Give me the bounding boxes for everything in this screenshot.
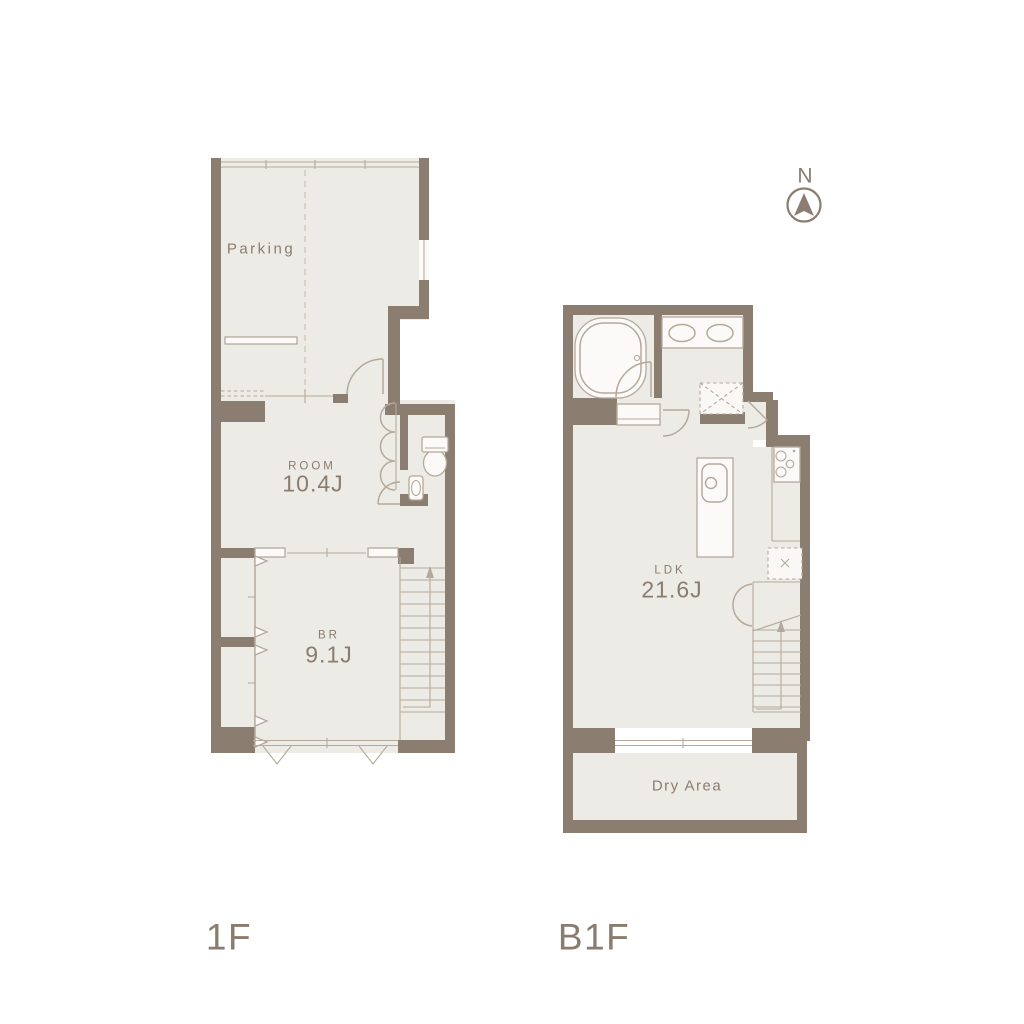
wall-b1f-bath-divider	[654, 313, 662, 398]
compass-north-label: N	[797, 166, 812, 187]
wall-1f-right	[445, 404, 455, 753]
parking-area	[211, 158, 429, 320]
wall-1f-toilet-left	[400, 415, 408, 470]
wall-b1f-wash-right	[743, 305, 753, 402]
ldk-label: LDK	[654, 565, 685, 577]
bedroom-size-label: 9.1J	[305, 644, 352, 667]
toilet-bowl	[424, 450, 447, 476]
wall-1f-bottom-left	[221, 727, 255, 753]
washbasin-counter	[662, 317, 743, 348]
laundry-niche	[617, 404, 660, 425]
toilet-tank	[422, 437, 448, 452]
floorplan-drawing	[0, 0, 1024, 1024]
wall-b1f-left	[563, 305, 573, 833]
wall-1f-door-sill	[333, 394, 348, 403]
wall-1f-parking-inner	[388, 317, 400, 409]
wall-1f-closet-separator	[221, 637, 255, 647]
parking-wheel-stopper	[225, 337, 297, 344]
bedroom-label: BR	[318, 630, 340, 642]
floor-plan-b1f	[563, 305, 810, 833]
divider-window-left	[255, 548, 285, 557]
wall-1f-br-divider-left	[221, 548, 255, 558]
dry-area-label: Dry Area	[652, 779, 722, 794]
parking-label: Parking	[227, 242, 295, 257]
wall-b1f-bottom	[563, 820, 807, 833]
wall-b1f-right	[800, 447, 810, 741]
north-arrow-icon	[794, 193, 814, 216]
wall-b1f-bath-bottom	[563, 398, 617, 425]
kitchen-area	[753, 447, 800, 728]
wall-b1f-bottom-left	[563, 728, 615, 753]
compass	[788, 189, 821, 222]
bathtub	[575, 318, 646, 398]
floor-label-1f: 1F	[206, 919, 252, 956]
1f-divider-windows	[255, 548, 398, 557]
room-size-label: 10.4J	[282, 473, 343, 496]
b1f-dry-area-window	[615, 738, 752, 748]
wall-b1f-kitchen-step-side	[766, 400, 778, 437]
divider-window-right	[368, 548, 398, 557]
wall-1f-parking-room-divider	[221, 401, 265, 422]
wall-1f-parking-right-upper	[419, 158, 429, 240]
wall-1f-bottom-right	[398, 740, 455, 753]
floor-label-b1f: B1F	[558, 919, 630, 956]
stove-knob	[793, 450, 796, 453]
wall-1f-left	[211, 158, 221, 753]
wall-b1f-kitchen-top	[766, 435, 810, 447]
ldk-size-label: 21.6J	[641, 579, 702, 602]
floorplan-page: Parking ROOM 10.4J BR 9.1J LDK 21.6J Dry…	[0, 0, 1024, 1024]
wall-b1f-bottom-right	[752, 728, 807, 753]
parking-area-lower	[211, 318, 388, 402]
